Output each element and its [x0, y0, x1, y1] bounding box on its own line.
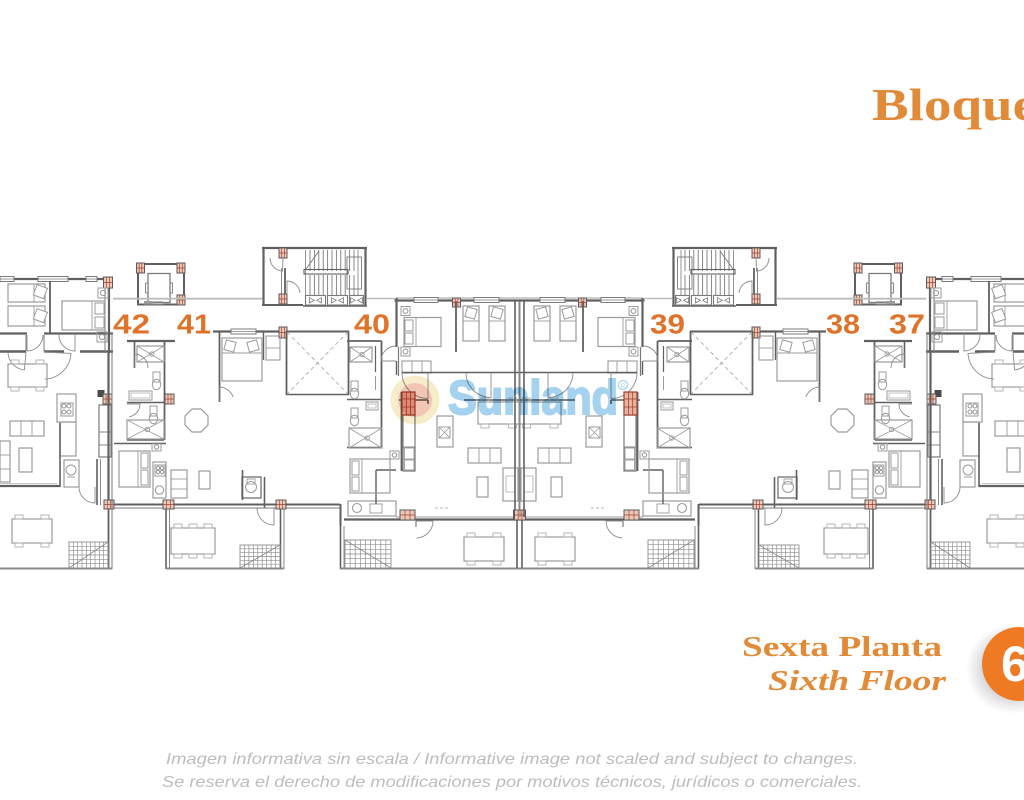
svg-text:41: 41 — [177, 309, 211, 340]
svg-text:38: 38 — [826, 309, 860, 340]
svg-text:42: 42 — [113, 309, 150, 340]
svg-text:Sexta Planta: Sexta Planta — [742, 632, 942, 663]
svg-text:Se reserva el derecho de modif: Se reserva el derecho de modificaciones … — [162, 774, 862, 791]
svg-text:39: 39 — [650, 309, 685, 340]
svg-text:R: R — [621, 383, 626, 390]
svg-text:6: 6 — [1001, 636, 1024, 692]
svg-text:Imagen informativa sin escala: Imagen informativa sin escala / Informat… — [166, 751, 858, 768]
svg-text:Sixth Floor: Sixth Floor — [768, 665, 947, 697]
svg-text:37: 37 — [889, 309, 925, 340]
svg-text:Bloque: Bloque — [872, 79, 1024, 130]
svg-text:Sunland: Sunland — [448, 372, 618, 425]
svg-text:40: 40 — [354, 309, 390, 340]
